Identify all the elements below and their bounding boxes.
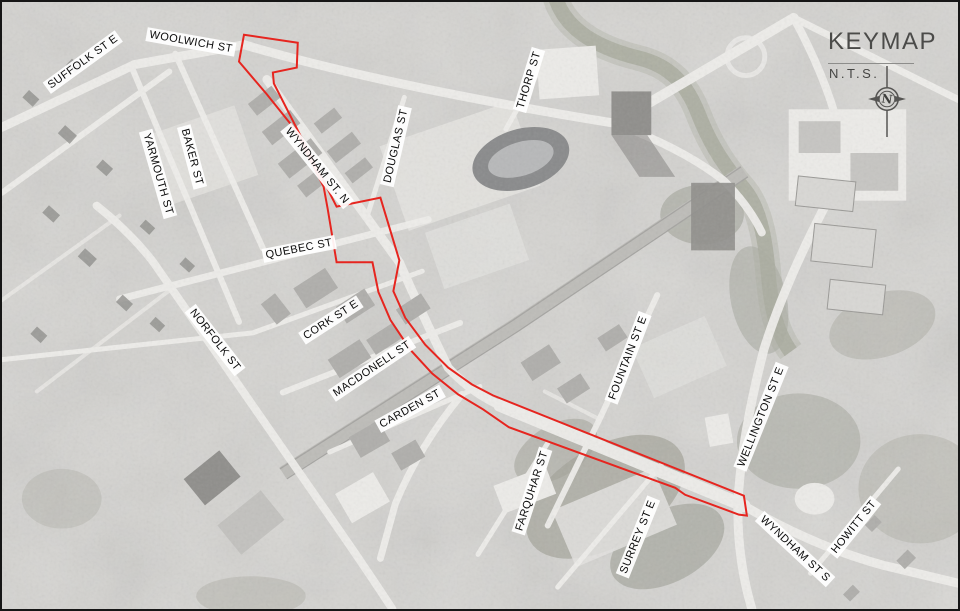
keymap-figure: SUFFOLK ST E WOOLWICH ST YARMOUTH ST BAK… [0,0,960,611]
compass-north-letter: N [881,91,894,106]
north-arrow-icon: N [862,60,912,142]
aerial-basemap [2,2,958,609]
keymap-title: KEYMAP [828,30,937,54]
